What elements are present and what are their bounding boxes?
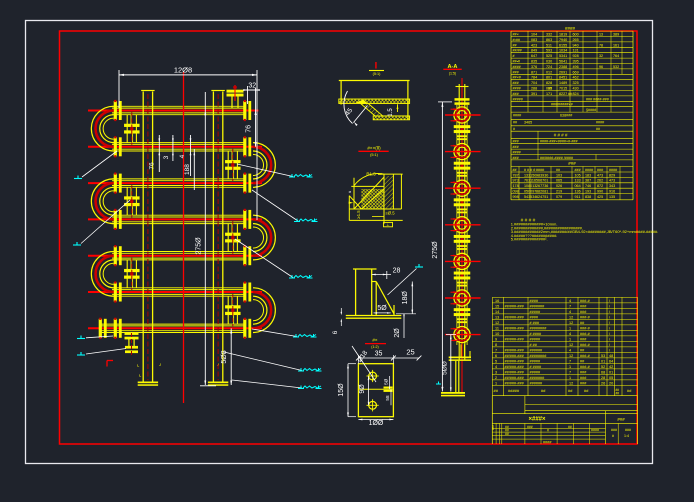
svg-text:4: 4: [569, 299, 571, 303]
svg-text:188: 188: [184, 164, 191, 175]
svg-text:###-#: ###-#: [580, 332, 591, 336]
svg-text:863: 863: [546, 38, 552, 42]
svg-text:89: 89: [548, 87, 552, 91]
svg-text:764: 764: [613, 54, 619, 58]
svg-text:026: 026: [556, 184, 562, 188]
svg-text:26: 26: [601, 381, 605, 385]
svg-text:15Ø: 15Ø: [338, 383, 345, 397]
svg-text:763116: 763116: [524, 179, 536, 183]
svg-text:098: 098: [513, 190, 519, 194]
svg-text:849: 849: [531, 49, 537, 53]
svg-text:389: 389: [613, 33, 619, 37]
svg-text:###-#: ###-#: [580, 326, 591, 330]
svg-text:9: 9: [495, 337, 497, 341]
svg-text:387: 387: [585, 179, 591, 183]
svg-text:12: 12: [495, 321, 499, 325]
svg-text:7015: 7015: [559, 87, 567, 91]
svg-text:########: ########: [530, 326, 548, 330]
svg-text:52: 52: [601, 365, 605, 369]
svg-text:267736: 267736: [536, 184, 548, 188]
svg-text:135: 135: [609, 195, 615, 199]
svg-text:030: 030: [546, 60, 552, 64]
svg-text:12: 12: [569, 321, 573, 325]
svg-text:(5:1): (5:1): [370, 153, 379, 157]
svg-text:##/###-###: ##/###-###: [505, 370, 525, 374]
svg-text:20: 20: [609, 381, 613, 385]
svg-text:×###×: ×###×: [528, 417, 546, 423]
svg-text:425: 425: [597, 195, 603, 199]
svg-text:178: 178: [513, 184, 519, 188]
svg-text:##: ##: [494, 388, 499, 393]
svg-text:746: 746: [585, 184, 591, 188]
svg-text:##: ##: [627, 388, 632, 393]
svg-text:828: 828: [546, 81, 552, 85]
svg-text:064: 064: [575, 184, 581, 188]
svg-text:#####: #####: [513, 97, 524, 101]
svg-text:12: 12: [569, 381, 573, 385]
svg-text:76: 76: [149, 162, 156, 170]
svg-text:####: ####: [530, 299, 539, 303]
svg-text:638###: 638###: [560, 114, 573, 118]
svg-text:#####: #####: [508, 388, 520, 393]
svg-text:8451: 8451: [559, 76, 567, 80]
svg-text:4: 4: [569, 332, 571, 336]
svg-text:# ##: # ##: [530, 343, 538, 347]
svg-text:423: 423: [531, 43, 537, 47]
svg-text:7: 7: [569, 370, 571, 374]
svg-text:4: 4: [179, 154, 186, 158]
svg-text:##/####-#### /####: ##/####-#### /####: [540, 156, 574, 160]
svg-text:12: 12: [569, 315, 573, 319]
svg-text:265: 265: [573, 38, 579, 42]
svg-text:511: 511: [546, 43, 552, 47]
svg-text:838: 838: [585, 195, 591, 199]
svg-text:##: ##: [584, 388, 589, 393]
svg-text:####-###×####×#-###: ####-###×####×#-###: [540, 140, 578, 144]
svg-text:647: 647: [531, 54, 537, 58]
svg-text:133150: 133150: [524, 173, 536, 177]
svg-text:1489: 1489: [559, 81, 567, 85]
svg-text:911: 911: [575, 195, 581, 199]
svg-text:1: 1: [569, 326, 571, 330]
svg-text:136: 136: [575, 190, 581, 194]
svg-text:7940: 7940: [559, 38, 567, 42]
svg-text:983930: 983930: [536, 173, 548, 177]
svg-text:108013: 108013: [524, 184, 536, 188]
svg-text:1: 1: [569, 376, 571, 380]
svg-text:1ØØ: 1ØØ: [369, 420, 384, 427]
svg-text:01: 01: [601, 359, 605, 363]
svg-text:5: 5: [495, 359, 497, 363]
svg-text:###-#: ###-#: [580, 315, 591, 319]
svg-text:###: ###: [625, 428, 631, 432]
svg-text:8: 8: [495, 343, 497, 347]
svg-text:593: 593: [546, 49, 552, 53]
svg-text:###: ###: [513, 145, 520, 149]
svg-text:566701: 566701: [536, 179, 548, 183]
svg-text:7: 7: [569, 359, 571, 363]
svg-text:≥1.5: ≥1.5: [356, 210, 361, 219]
svg-text:600: 600: [573, 33, 579, 37]
svg-text:###/#####×#: ###/#####×#: [551, 103, 574, 107]
svg-text:###: ###: [580, 310, 587, 314]
svg-text:171: 171: [546, 92, 552, 96]
svg-text:012: 012: [546, 70, 552, 74]
svg-text:13: 13: [495, 315, 499, 319]
svg-text:6: 6: [332, 330, 339, 334]
svg-text:325: 325: [573, 81, 579, 85]
svg-text:3: 3: [163, 155, 170, 159]
svg-text:7: 7: [495, 348, 497, 352]
svg-text:5341: 5341: [559, 54, 567, 58]
svg-text:05: 05: [609, 376, 613, 380]
svg-text:083: 083: [531, 38, 537, 42]
svg-text:#####: #####: [530, 337, 541, 341]
svg-text:275Ø: 275Ø: [195, 237, 202, 255]
svg-text:2: 2: [495, 376, 497, 380]
svg-text:1819: 1819: [559, 33, 567, 37]
svg-text:824: 824: [573, 92, 579, 96]
svg-text:2388: 2388: [559, 65, 567, 69]
svg-text:13: 13: [599, 33, 603, 37]
svg-text:##/###-###: ##/###-###: [505, 304, 525, 308]
svg-text:42: 42: [609, 365, 613, 369]
svg-text:######: ######: [530, 381, 544, 385]
svg-text:53: 53: [601, 354, 605, 358]
svg-text:4: 4: [569, 348, 571, 352]
svg-text:####: ####: [565, 26, 576, 31]
svg-text:4: 4: [495, 365, 497, 369]
svg-text:##/###-###: ##/###-###: [505, 337, 525, 341]
svg-text:1: 1: [495, 381, 497, 385]
svg-text:14: 14: [495, 310, 499, 314]
svg-text:##: ##: [505, 432, 509, 436]
svg-text:###: ###: [568, 161, 576, 166]
svg-text:68: 68: [601, 370, 605, 374]
svg-text:050097: 050097: [524, 190, 536, 194]
svg-text:395: 395: [573, 60, 579, 64]
svg-text:332: 332: [546, 33, 552, 37]
svg-text:###: ###: [580, 381, 587, 385]
svg-text:12: 12: [569, 354, 573, 358]
svg-text:###: ###: [580, 376, 587, 380]
svg-text:1: 1: [569, 365, 571, 369]
svg-text:391: 391: [531, 92, 537, 96]
svg-text:6155: 6155: [559, 43, 567, 47]
svg-text:928: 928: [573, 54, 579, 58]
svg-text:# ###: # ###: [530, 321, 540, 325]
svg-text:990: 990: [597, 190, 603, 194]
svg-text:64: 64: [609, 359, 613, 363]
svg-text:288: 288: [531, 87, 537, 91]
svg-text:183: 183: [585, 173, 591, 177]
svg-text:#×: #×: [372, 338, 378, 343]
svg-text:998: 998: [513, 195, 519, 199]
svg-text:065: 065: [556, 179, 562, 183]
svg-text:###-#: ###-#: [580, 343, 591, 347]
svg-text:2691: 2691: [559, 70, 567, 74]
svg-text:525: 525: [546, 54, 552, 58]
svg-text:####: ####: [513, 87, 522, 91]
svg-text:####: ####: [585, 168, 594, 172]
svg-text:##/###-###: ##/###-###: [505, 365, 525, 369]
svg-text:###: ###: [575, 168, 582, 172]
svg-text:# # # #: # # # #: [552, 133, 568, 138]
svg-text:704: 704: [531, 81, 537, 85]
svg-text:###-#: ###-#: [580, 365, 591, 369]
svg-text:784: 784: [531, 76, 537, 80]
svg-text:916: 916: [609, 190, 615, 194]
svg-text:###: ###: [513, 156, 520, 160]
svg-text:973: 973: [513, 179, 519, 183]
svg-text:5Ø: 5Ø: [377, 305, 387, 312]
svg-text:###: ###: [617, 417, 625, 422]
svg-text:01: 01: [609, 370, 613, 374]
svg-text:5Ø: 5Ø: [383, 378, 388, 385]
svg-text:##: ##: [541, 388, 546, 393]
svg-text:####: ####: [513, 114, 522, 118]
svg-text:5641: 5641: [559, 60, 567, 64]
svg-text:####: ####: [536, 168, 545, 172]
svg-text:10: 10: [495, 332, 499, 336]
svg-text:882081: 882081: [536, 190, 548, 194]
svg-text:32: 32: [248, 83, 256, 90]
svg-text:# ####: # ####: [530, 365, 543, 369]
svg-text:3465: 3465: [524, 121, 532, 125]
svg-text:####: ####: [513, 65, 522, 69]
svg-text:262: 262: [597, 179, 603, 183]
svg-text:543534: 543534: [524, 195, 536, 199]
svg-text:275Ø: 275Ø: [432, 241, 439, 259]
svg-text:801: 801: [546, 76, 552, 80]
svg-text:I: I: [375, 61, 378, 72]
svg-text:2Ø: 2Ø: [394, 328, 401, 338]
svg-text:1.5: 1.5: [388, 108, 394, 117]
svg-text:5.##############².: 5.##############².: [511, 237, 548, 242]
svg-text:829: 829: [609, 173, 615, 177]
svg-text:11: 11: [495, 326, 499, 330]
svg-text:473: 473: [609, 179, 615, 183]
svg-text:(1:5): (1:5): [449, 71, 456, 75]
svg-text:430: 430: [573, 87, 579, 91]
svg-text:624751: 624751: [536, 195, 548, 199]
svg-text:(5:1): (5:1): [373, 72, 382, 76]
svg-text:# # # #: # # # #: [524, 168, 536, 172]
svg-text:⌞: ⌞: [139, 372, 142, 378]
svg-text:≥Ø.5: ≥Ø.5: [385, 210, 395, 215]
svg-text:⌞: ⌞: [137, 362, 140, 368]
svg-text:76: 76: [246, 125, 253, 133]
svg-text:376: 376: [531, 65, 537, 69]
svg-text:##: ##: [568, 425, 572, 429]
svg-text:##/###-###: ##/###-###: [505, 359, 525, 363]
svg-text:15: 15: [495, 304, 499, 308]
svg-text:####: ####: [513, 151, 522, 155]
svg-text:###: ###: [580, 337, 587, 341]
svg-text:871: 871: [531, 70, 537, 74]
svg-text:###: ###: [580, 370, 587, 374]
svg-text:####: ####: [609, 168, 618, 172]
svg-text:58: 58: [385, 395, 390, 401]
svg-text:35: 35: [375, 351, 383, 358]
svg-text:133: 133: [575, 179, 581, 183]
svg-text:6: 6: [495, 354, 497, 358]
svg-text:####: ####: [530, 315, 539, 319]
svg-text:103: 103: [556, 173, 562, 177]
svg-text:###: ###: [597, 168, 604, 172]
svg-text:##/###-###: ##/###-###: [505, 315, 525, 319]
svg-text:####: ####: [591, 428, 599, 432]
svg-text:#######: #######: [530, 304, 546, 308]
svg-text:#××(Ⅱ): #××(Ⅱ): [367, 146, 381, 151]
svg-text:##/###-###: ##/###-###: [505, 326, 525, 330]
svg-text:219: 219: [556, 190, 562, 194]
svg-text:###: ###: [580, 304, 587, 308]
svg-text:##/###-###: ##/###-###: [505, 354, 525, 358]
svg-text:104: 104: [531, 33, 537, 37]
svg-text:####: ####: [543, 440, 552, 444]
svg-text:###: ###: [513, 92, 520, 96]
svg-text:473: 473: [597, 173, 603, 177]
svg-text:5ØØ: 5ØØ: [441, 361, 448, 375]
svg-text:1:4: 1:4: [624, 434, 629, 438]
svg-text:835: 835: [531, 60, 537, 64]
svg-text:######: ######: [530, 348, 544, 352]
svg-text:# ####: # ####: [530, 332, 543, 336]
svg-text:#####: #####: [530, 359, 541, 363]
svg-text:##/###-###: ##/###-###: [505, 381, 525, 385]
svg-text:##/###-###: ##/###-###: [505, 376, 525, 380]
svg-text:#: #: [612, 434, 614, 438]
svg-text:193: 193: [585, 190, 591, 194]
svg-text:###: ###: [527, 425, 533, 429]
svg-text:#: #: [547, 429, 549, 433]
svg-text:787: 787: [513, 173, 519, 177]
svg-text:1034: 1034: [559, 49, 567, 53]
svg-text:96: 96: [599, 65, 603, 69]
svg-text:496: 496: [573, 65, 579, 69]
svg-text:##/##: ##/##: [513, 49, 523, 53]
svg-text:##: ##: [568, 388, 573, 393]
svg-text:161: 161: [613, 43, 619, 47]
svg-text:1: 1: [569, 337, 571, 341]
svg-text:3: 3: [495, 370, 497, 374]
svg-text:872: 872: [597, 184, 603, 188]
svg-text:78: 78: [599, 43, 603, 47]
svg-text:940: 940: [573, 43, 579, 47]
svg-text:48: 48: [609, 354, 613, 358]
svg-text:18Ø: 18Ø: [402, 291, 409, 305]
svg-text:8227: 8227: [559, 92, 567, 96]
svg-text:###: ###: [491, 425, 495, 430]
svg-text:###: ###: [611, 428, 617, 432]
svg-text:§####: §####: [586, 108, 597, 112]
svg-text:###: ###: [513, 70, 520, 74]
svg-text:##•#: ##•#: [513, 60, 521, 64]
svg-text:##: ##: [616, 391, 620, 395]
svg-text:462: 462: [573, 76, 579, 80]
svg-text:079: 079: [556, 195, 562, 199]
svg-text:12: 12: [569, 343, 573, 347]
svg-text:###-#: ###-#: [580, 354, 591, 358]
svg-text:343: 343: [609, 184, 615, 188]
svg-text:669: 669: [573, 70, 579, 74]
svg-text:9Ø: 9Ø: [359, 384, 366, 394]
svg-text:##/###-###: ##/###-###: [505, 348, 525, 352]
svg-text:25: 25: [406, 348, 414, 357]
svg-text:⌟: ⌟: [159, 361, 162, 367]
svg-text:#####: #####: [530, 370, 541, 374]
svg-text:####: ####: [596, 121, 605, 125]
svg-text:4: 4: [569, 310, 571, 314]
svg-text:##×#: ##×#: [513, 76, 522, 80]
svg-text:##×: ##×: [513, 33, 519, 37]
svg-text:###: ###: [513, 140, 520, 144]
svg-text:### ####-###: ### ####-###: [586, 97, 610, 101]
svg-text:12Ø8: 12Ø8: [174, 65, 192, 74]
svg-text:28: 28: [601, 376, 605, 380]
svg-text:16: 16: [495, 299, 499, 303]
svg-text:########: ########: [530, 354, 548, 358]
svg-text:#####: #####: [530, 310, 541, 314]
svg-text:131: 131: [573, 49, 579, 53]
svg-text:(1:2): (1:2): [371, 345, 378, 349]
svg-text:532: 532: [613, 65, 619, 69]
svg-text:7: 7: [569, 304, 571, 308]
svg-text:#•##: #•##: [513, 38, 521, 42]
svg-text:#######: #######: [530, 376, 546, 380]
svg-text:724: 724: [546, 65, 552, 69]
svg-text:28: 28: [393, 268, 401, 275]
svg-text:###: ###: [513, 81, 520, 85]
svg-text:32: 32: [599, 54, 603, 58]
svg-text:###-#: ###-#: [580, 299, 591, 303]
svg-text:105: 105: [575, 173, 581, 177]
